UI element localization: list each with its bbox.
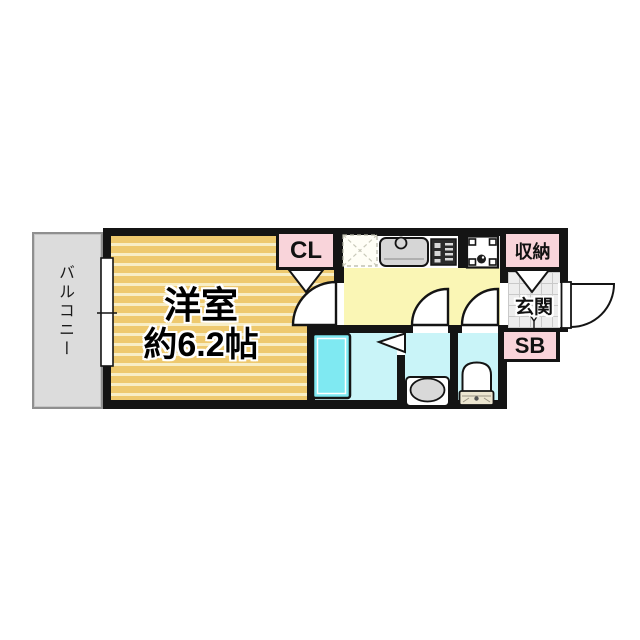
stove-icon xyxy=(431,239,456,265)
kitchen-sink-icon xyxy=(380,238,428,267)
toilet-door-swing-icon xyxy=(462,289,498,325)
washing-machine-pan-icon xyxy=(467,237,498,268)
bathroom-door-icon xyxy=(379,334,405,353)
bathtub-icon xyxy=(313,334,350,398)
storage-door-icon xyxy=(515,270,549,292)
floorplan-canvas: バルコニー CL 収納 SB xyxy=(0,0,640,640)
entry-door-swing-icon xyxy=(562,282,615,328)
washbasin-door-swing-icon xyxy=(412,289,448,325)
washbasin-icon xyxy=(406,377,449,406)
refrigerator-space-icon xyxy=(343,235,377,266)
living-room-label-line1: 洋室 xyxy=(116,287,286,324)
toilet-icon xyxy=(460,363,494,406)
fixtures-layer xyxy=(0,0,640,640)
living-room-label-line2: 約6.2帖 xyxy=(106,328,296,362)
living-door-swing-icon xyxy=(293,282,336,325)
entrance-label: 玄関 xyxy=(508,292,560,319)
